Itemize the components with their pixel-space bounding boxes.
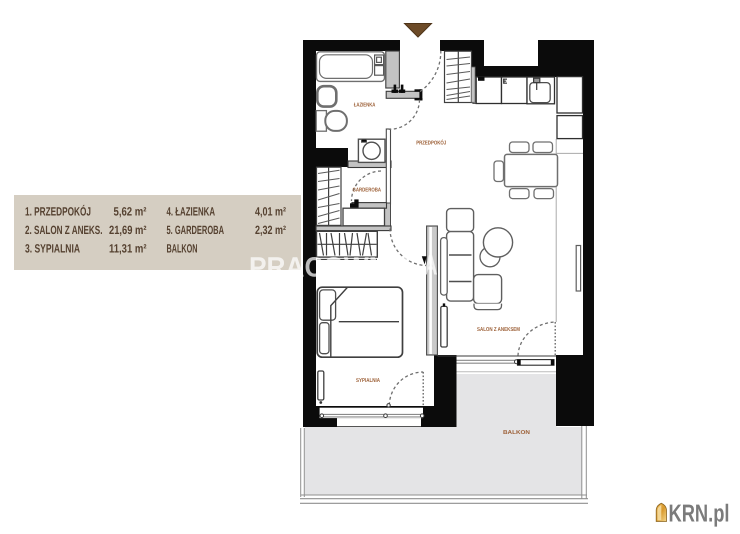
svg-text:4,01 m²: 4,01 m² — [255, 205, 286, 219]
svg-text:BALKON: BALKON — [503, 430, 530, 436]
svg-text:1. PRZEDPOKÓJ: 1. PRZEDPOKÓJ — [25, 205, 91, 219]
svg-text:KRN.pl: KRN.pl — [669, 501, 730, 528]
svg-text:4. ŁAZIENKA: 4. ŁAZIENKA — [167, 205, 216, 219]
svg-text:5. GARDEROBA: 5. GARDEROBA — [167, 223, 225, 237]
svg-text:GARDEROBA: GARDEROBA — [353, 188, 382, 194]
svg-text:21,69 m²: 21,69 m² — [109, 223, 147, 237]
svg-text:ŁAZIENKA: ŁAZIENKA — [354, 102, 376, 108]
svg-text:BALKON: BALKON — [167, 242, 198, 256]
svg-text:PRACOWNIA: PRACOWNIA — [249, 252, 414, 283]
svg-text:SALON Z ANEKSEM: SALON Z ANEKSEM — [477, 327, 520, 333]
svg-text:3. SYPIALNIA: 3. SYPIALNIA — [25, 242, 80, 256]
svg-text:2. SALON Z ANEKS.: 2. SALON Z ANEKS. — [25, 223, 103, 237]
svg-text:2,32 m²: 2,32 m² — [255, 223, 286, 237]
svg-text:SYPIALNIA: SYPIALNIA — [356, 378, 380, 384]
svg-text:11,31 m²: 11,31 m² — [109, 242, 147, 256]
svg-text:PRZEDPOKÓJ: PRZEDPOKÓJ — [416, 140, 446, 147]
svg-text:A: A — [424, 250, 438, 281]
svg-text:5,62 m²: 5,62 m² — [114, 205, 147, 219]
